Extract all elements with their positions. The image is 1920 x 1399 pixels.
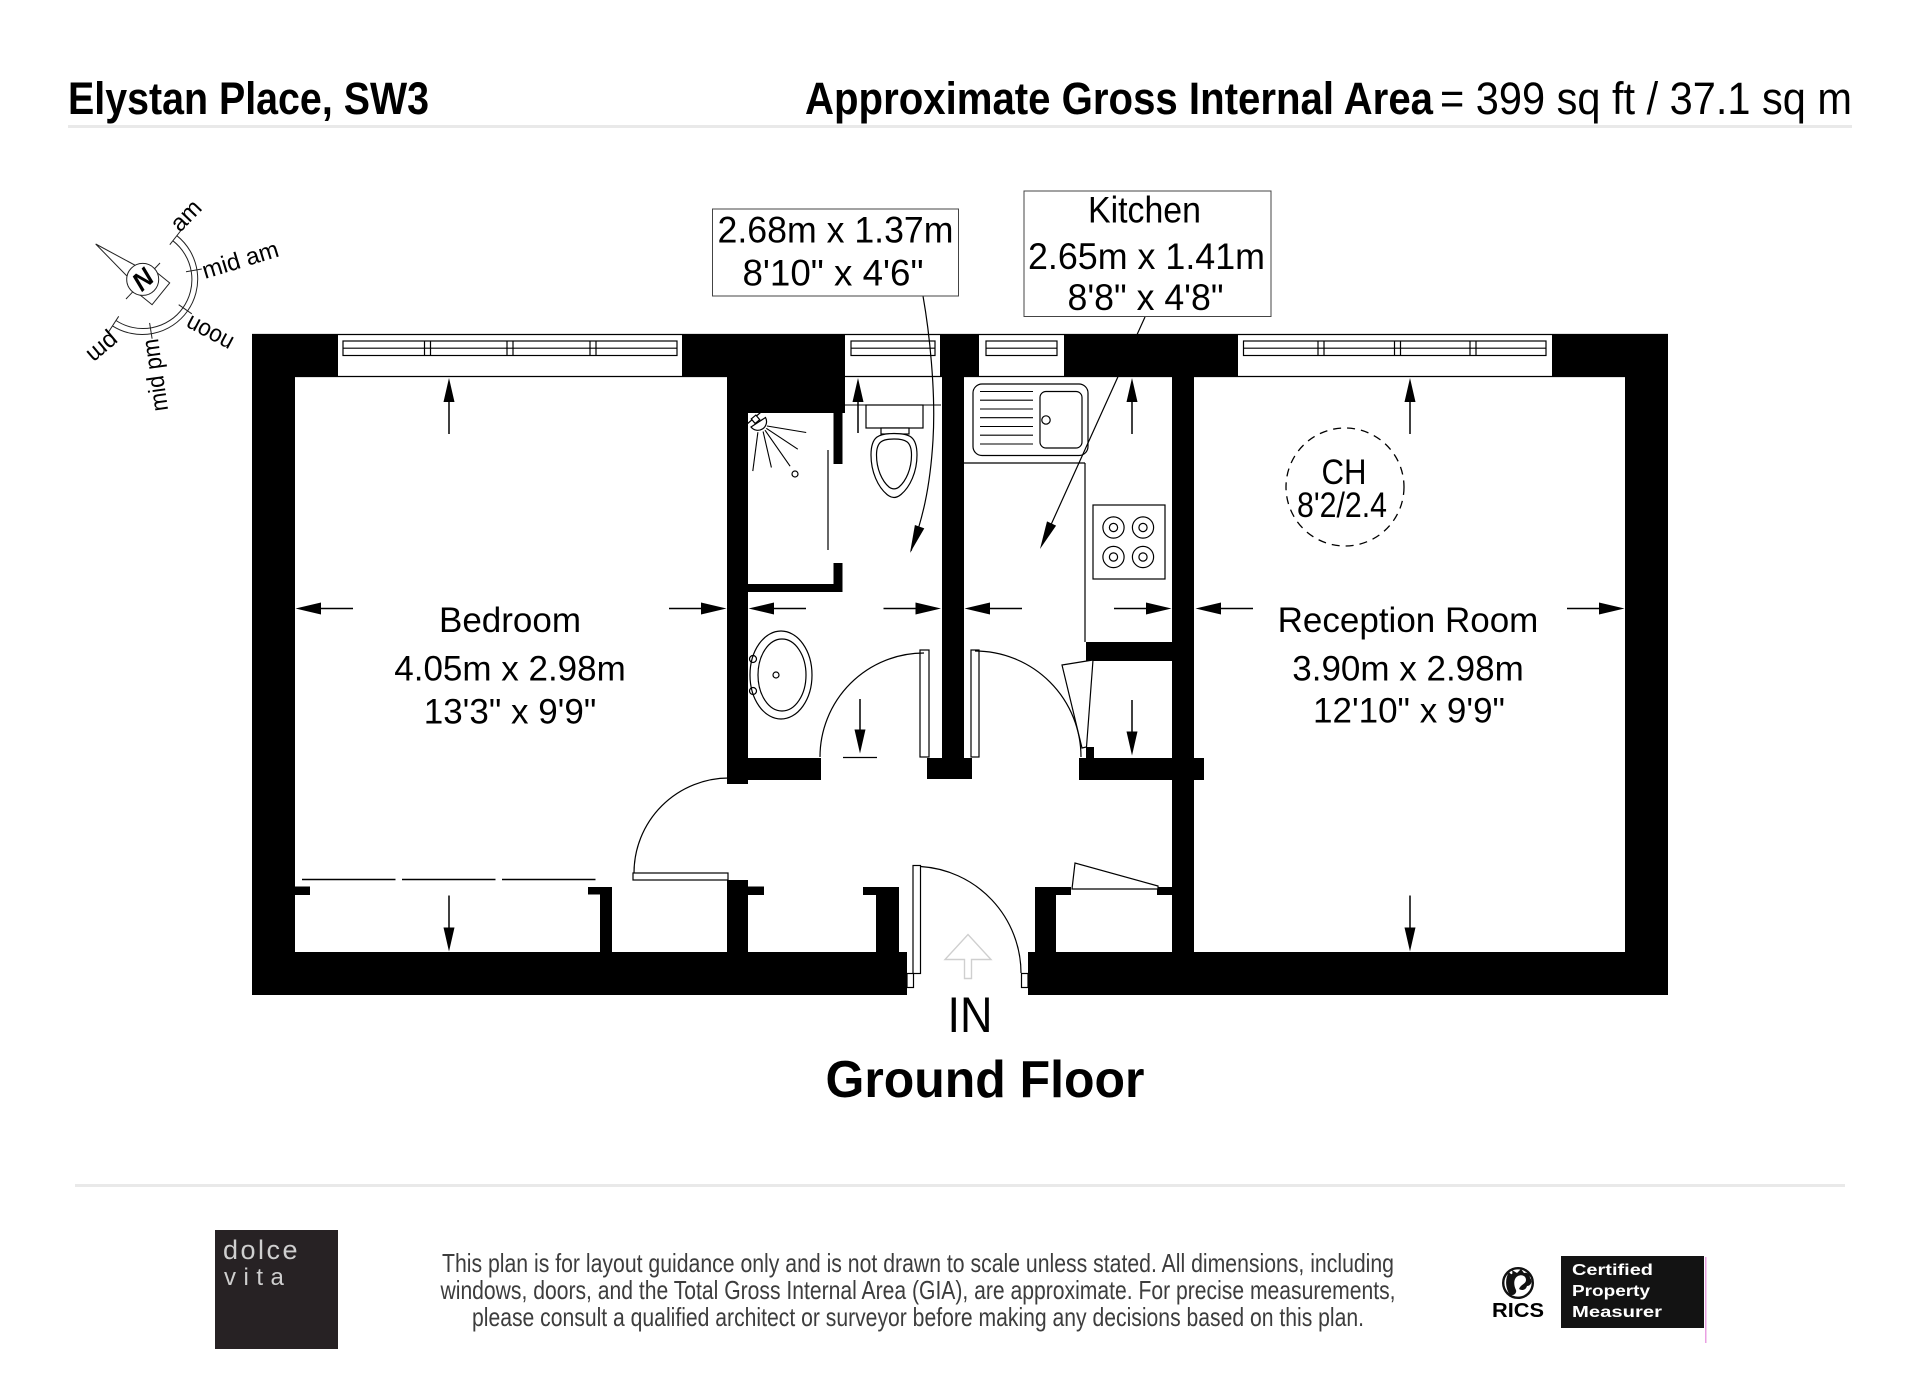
svg-text:8'8" x 4'8": 8'8" x 4'8" (1068, 277, 1224, 318)
svg-text:pm: pm (81, 327, 124, 369)
svg-text:This plan is for layout guidan: This plan is for layout guidance only an… (442, 1248, 1394, 1278)
svg-text:Measurer: Measurer (1572, 1304, 1662, 1321)
svg-text:vita: vita (224, 1264, 291, 1291)
svg-text:RICS: RICS (1492, 1300, 1544, 1322)
svg-text:2.65m x 1.41m: 2.65m x 1.41m (1028, 236, 1265, 277)
svg-text:Certified: Certified (1572, 1262, 1653, 1279)
svg-text:mid am: mid am (199, 236, 282, 285)
svg-text:Elystan Place, SW3: Elystan Place, SW3 (68, 73, 429, 124)
svg-text:mid pm: mid pm (137, 337, 174, 413)
svg-text:noon: noon (181, 309, 238, 356)
svg-text:Reception Room: Reception Room (1278, 601, 1539, 640)
svg-text:8'10" x 4'6": 8'10" x 4'6" (743, 253, 924, 294)
svg-text:Ground Floor: Ground Floor (826, 1051, 1145, 1109)
svg-text:Property: Property (1572, 1283, 1650, 1300)
svg-text:Kitchen: Kitchen (1088, 190, 1201, 231)
svg-text:dolce: dolce (223, 1235, 300, 1265)
svg-text:4.05m x 2.98m: 4.05m x 2.98m (394, 650, 626, 689)
svg-text:windows, doors, and the Total: windows, doors, and the Total Gross Inte… (440, 1275, 1396, 1305)
svg-text:Bedroom: Bedroom (439, 601, 581, 640)
svg-text:IN: IN (948, 987, 993, 1043)
svg-text:= 399 sq ft / 37.1 sq m: = 399 sq ft / 37.1 sq m (1440, 73, 1852, 124)
svg-text:please consult a qualified arc: please consult a qualified architect or … (472, 1302, 1364, 1332)
svg-text:13'3" x 9'9": 13'3" x 9'9" (424, 693, 597, 732)
svg-text:3.90m x 2.98m: 3.90m x 2.98m (1292, 650, 1524, 689)
svg-text:8'2/2.4: 8'2/2.4 (1297, 486, 1387, 525)
svg-text:2.68m x 1.37m: 2.68m x 1.37m (718, 210, 954, 251)
svg-text:12'10" x 9'9": 12'10" x 9'9" (1313, 692, 1505, 731)
svg-text:Approximate Gross Internal Are: Approximate Gross Internal Area (805, 73, 1434, 124)
svg-text:am: am (165, 194, 208, 237)
